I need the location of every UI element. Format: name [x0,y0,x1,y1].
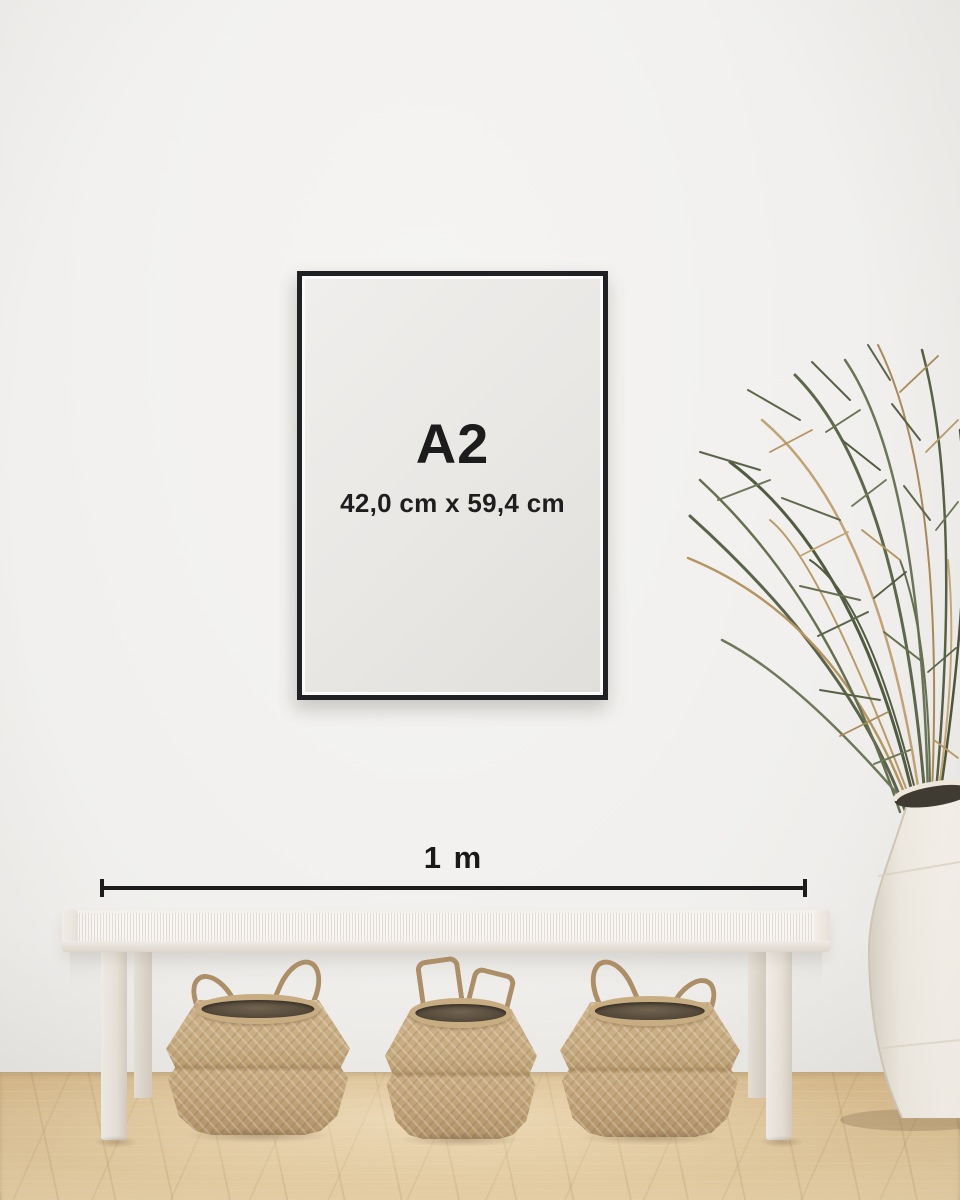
bench-leg-shadow-left [94,1136,138,1148]
bench-leg-back-right [748,950,766,1098]
basket-right [560,960,740,1145]
basket-shadow [184,1128,331,1143]
bench-leg-shadow-right [760,1136,804,1148]
scale-bar-tick-right [803,879,807,897]
bench-leg-front-right [766,950,792,1140]
basket-shadow [578,1130,722,1145]
scale-bar-label: 1 m [100,840,807,876]
scene: A2 42,0 cm x 59,4 cm [0,0,960,1200]
poster-frame: A2 42,0 cm x 59,4 cm [297,271,608,700]
poster-size-label: A2 [416,416,490,472]
scale-bar-line [100,886,807,890]
basket-opening [409,998,512,1028]
basket-middle [385,962,537,1147]
bench-front-rail [62,941,830,952]
scale-bar-tick-left [100,879,104,897]
scale-bar: 1 m [100,840,807,900]
poster-dimensions-label: 42,0 cm x 59,4 cm [340,488,565,519]
basket-left [166,958,350,1143]
basket-opening [195,994,320,1024]
bench-leg-front-left [101,950,127,1140]
poster: A2 42,0 cm x 59,4 cm [302,276,603,695]
bench-leg-back-left [134,950,152,1098]
basket-opening [589,996,711,1026]
basket-body [385,1009,537,1139]
basket-shadow [400,1132,522,1147]
